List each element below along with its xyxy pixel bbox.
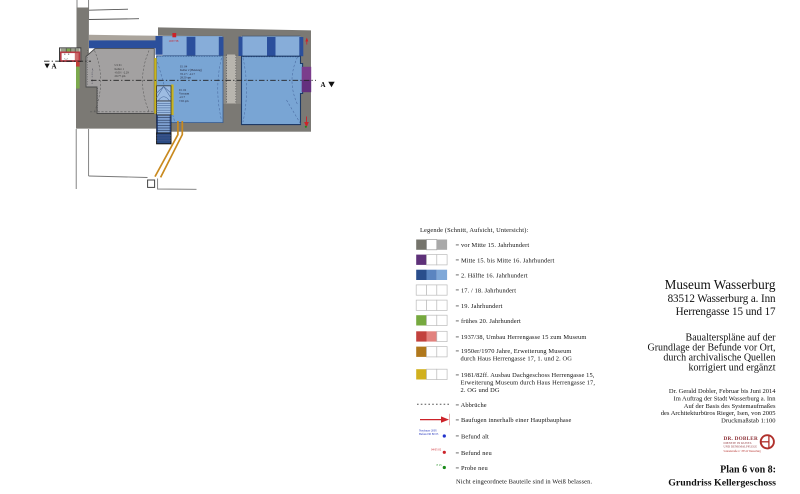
svg-text:Befund 90 80 05: Befund 90 80 05	[419, 432, 439, 436]
svg-text:UND DENKMALPFLEGE: UND DENKMALPFLEGE	[724, 445, 758, 449]
svg-text:= frühes 20. Jahrhundert: = frühes 20. Jahrhundert	[456, 318, 522, 325]
svg-text:Auf der Basis des Systemaufmaß: Auf der Basis des Systemaufmaßes	[684, 403, 776, 410]
svg-text:Erweiterung Museum durch Haus: Erweiterung Museum durch Haus Herrengass…	[461, 379, 596, 386]
svg-text:A: A	[321, 81, 326, 89]
svg-text:29.77 qm: 29.77 qm	[115, 74, 127, 78]
svg-text:7.65 qm: 7.65 qm	[179, 99, 189, 103]
svg-text:= 17. / 18. Jahrhundert: = 17. / 18. Jahrhundert	[456, 288, 517, 295]
svg-text:Plan 6 von 8:: Plan 6 von 8:	[720, 465, 776, 476]
svg-text:= 1937/38, Umbau Herrengasse 1: = 1937/38, Umbau Herrengasse 15 zum Muse…	[456, 334, 587, 341]
svg-text:2. OG und DG: 2. OG und DG	[461, 387, 500, 394]
svg-text:= Befund alt: = Befund alt	[456, 434, 490, 441]
svg-text:A: A	[52, 63, 57, 71]
svg-text:04/05 02: 04/05 02	[431, 448, 442, 452]
svg-text:= 19. Jahrhundert: = 19. Jahrhundert	[456, 303, 503, 310]
svg-text:durch Haus Herrengasse 17, 1.: durch Haus Herrengasse 17, 1. und 2. OG	[461, 355, 573, 362]
svg-text:Dr. Gerald Dobler, Februar bis: Dr. Gerald Dobler, Februar bis Juni 2014	[669, 388, 776, 395]
svg-text:Nicht eingeordnete Bauteile si: Nicht eingeordnete Bauteile sind in Weiß…	[456, 479, 592, 486]
svg-text:= Abbrüche: = Abbrüche	[456, 402, 487, 409]
svg-text:28.50 qm: 28.50 qm	[180, 75, 192, 79]
svg-text:des Architekturbüros Rieger, I: des Architekturbüros Rieger, Isen, von 2…	[661, 410, 776, 417]
svg-text:= Mitte 15. bis Mitte 16. Jahr: = Mitte 15. bis Mitte 16. Jahrhundert	[456, 257, 555, 264]
svg-text:Im Auftrag der Stadt Wasserbur: Im Auftrag der Stadt Wasserburg a. Inn	[674, 395, 777, 402]
svg-text:83512 Wasserburg a. Inn: 83512 Wasserburg a. Inn	[668, 293, 776, 305]
svg-text:Sonnenstraße 4 · 83512 Wasserb: Sonnenstraße 4 · 83512 Wasserburg	[724, 450, 762, 453]
svg-text:P 15: P 15	[437, 463, 443, 467]
svg-text:= 2. Hälfte 16. Jahrhundert: = 2. Hälfte 16. Jahrhundert	[456, 272, 528, 279]
svg-text:= Probe neu: = Probe neu	[456, 465, 489, 472]
svg-text:Museum Wasserburg: Museum Wasserburg	[665, 277, 776, 292]
svg-text:Herrengasse 15 und 17: Herrengasse 15 und 17	[676, 306, 776, 318]
svg-text:= vor Mitte 15. Jahrhundert: = vor Mitte 15. Jahrhundert	[456, 242, 530, 249]
svg-text:Grundriss Kellergeschoss: Grundriss Kellergeschoss	[668, 477, 776, 488]
svg-text:0.00 -2.29 qm: 0.00 -2.29 qm	[91, 68, 94, 84]
svg-text:= Baufugen innerhalb einer Hau: = Baufugen innerhalb einer Hauptbauphase	[456, 417, 572, 424]
svg-text:1937/38: 1937/38	[169, 39, 179, 43]
svg-text:Druckmaßstab 1:100: Druckmaßstab 1:100	[721, 418, 775, 425]
svg-text:= 1950er/1970 Jahre, Erweiteru: = 1950er/1970 Jahre, Erweiterung Museum	[456, 348, 572, 355]
svg-text:korrigiert und ergänzt: korrigiert und ergänzt	[688, 363, 775, 374]
svg-text:= 1981/82ff. Ausbau Dachgescho: = 1981/82ff. Ausbau Dachgeschoss Herreng…	[456, 372, 595, 379]
svg-text:= Befund neu: = Befund neu	[456, 450, 493, 457]
svg-text:Legende (Schnitt, Aufsicht, Un: Legende (Schnitt, Aufsicht, Untersicht):	[420, 227, 528, 234]
